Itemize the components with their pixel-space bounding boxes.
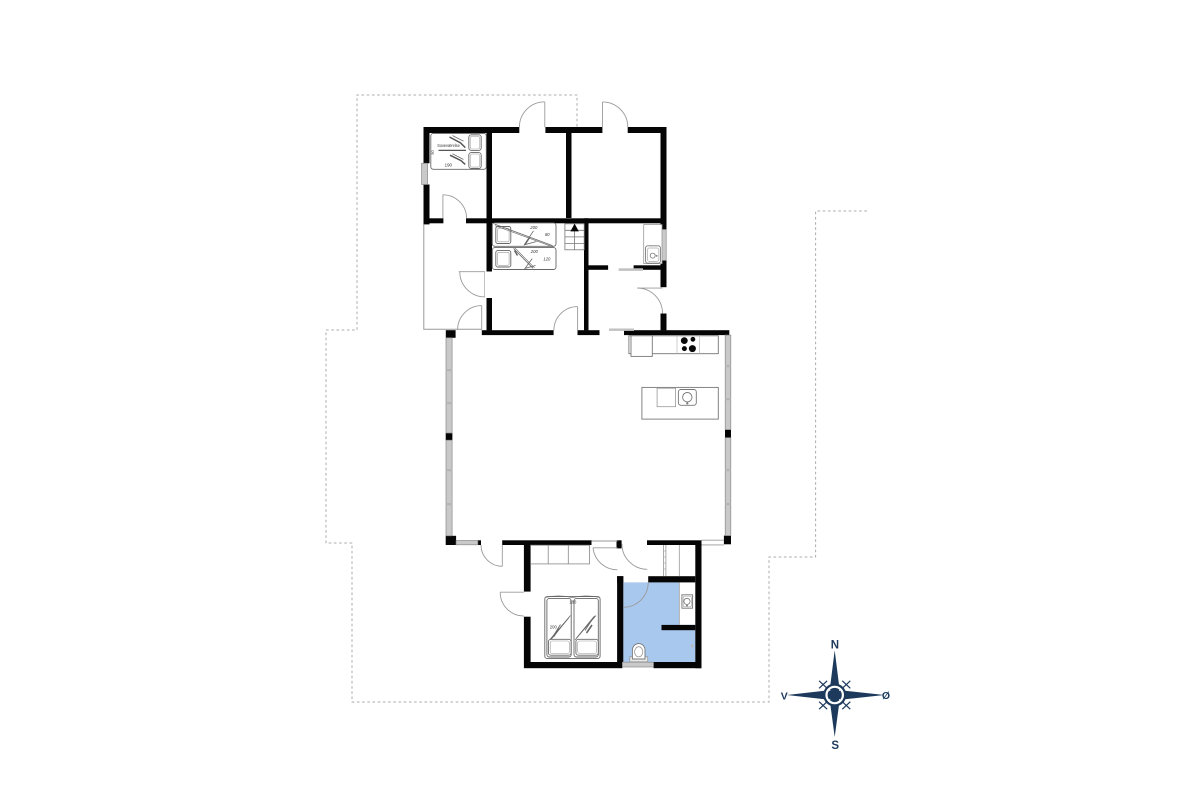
svg-text:180: 180 (569, 600, 577, 605)
svg-text:190: 190 (445, 162, 453, 167)
svg-text:Soveværelse: Soveværelse (437, 143, 460, 148)
svg-text:200: 200 (550, 625, 558, 630)
svg-text:S: S (831, 740, 839, 752)
svg-text:120: 120 (543, 257, 551, 262)
svg-text:90: 90 (431, 150, 435, 154)
svg-text:Ø: Ø (882, 690, 890, 702)
svg-text:80: 80 (545, 232, 550, 237)
svg-text:N: N (831, 639, 839, 651)
svg-text:V: V (781, 691, 788, 703)
svg-text:200: 200 (529, 225, 538, 230)
svg-text:200: 200 (530, 249, 539, 254)
